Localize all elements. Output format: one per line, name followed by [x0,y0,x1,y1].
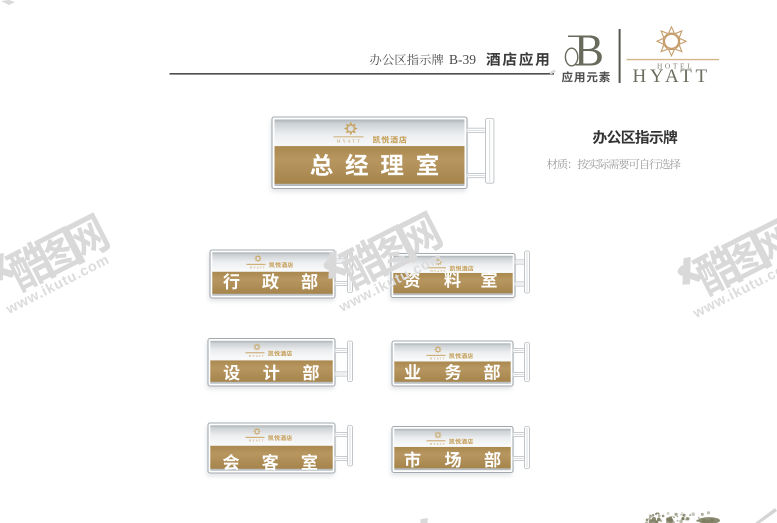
svg-text:HYATT: HYATT [250,265,266,269]
svg-text:HYATT: HYATT [430,356,446,360]
svg-text:HYATT: HYATT [337,138,362,143]
svg-text:HYATT: HYATT [430,442,446,446]
svg-text:HYATT: HYATT [249,438,265,442]
svg-text:HYATT: HYATT [633,66,711,87]
svg-text:B-39: B-39 [449,52,476,67]
svg-text:HYATT: HYATT [249,354,265,358]
svg-text:B: B [574,26,604,76]
